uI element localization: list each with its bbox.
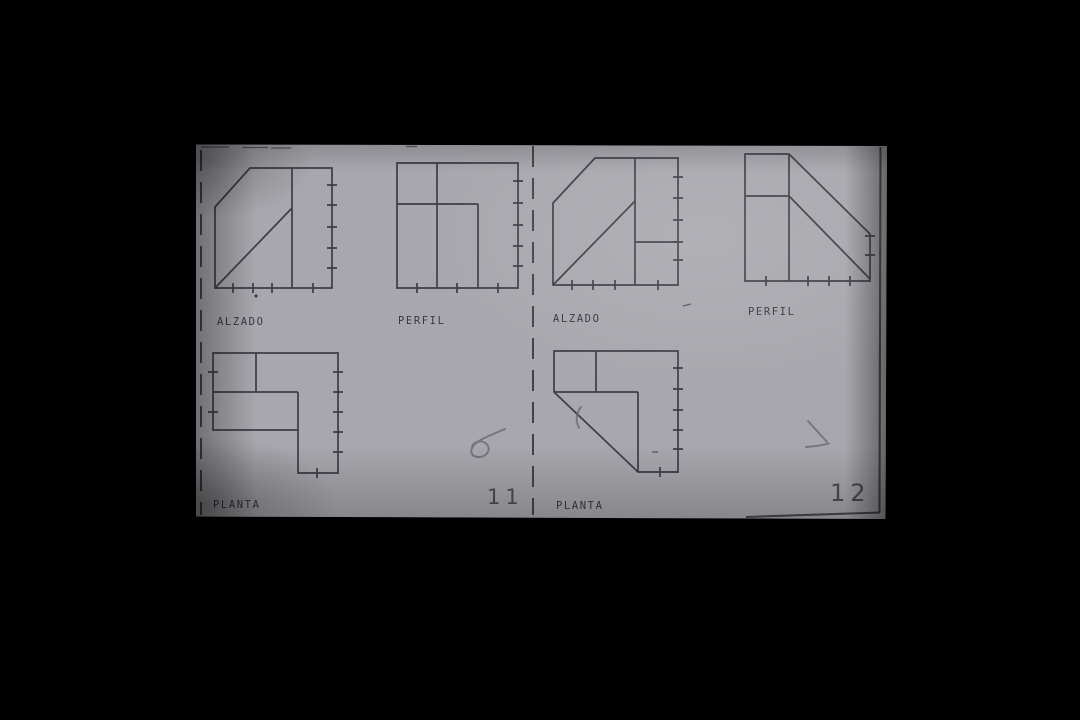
right-printed-border [880,147,881,513]
label-planta-12: PLANTA [556,500,604,512]
worksheet-photo: ALZADO PERFIL PLANTA 11 [0,0,1080,720]
exercise-number-12: 12 [830,479,871,507]
label-perfil-12: PERFIL [748,306,796,318]
paper-sheet [196,145,887,520]
stray-ink-dot [254,294,257,297]
label-perfil-11: PERFIL [398,315,446,327]
photo-canvas: ALZADO PERFIL PLANTA 11 [0,0,1080,720]
label-alzado-12: ALZADO [553,313,601,325]
worksheet-paper: ALZADO PERFIL PLANTA 11 [78,75,990,575]
label-planta-11: PLANTA [213,499,261,511]
exercise-number-11: 11 [487,485,524,509]
label-alzado-11: ALZADO [217,316,265,328]
